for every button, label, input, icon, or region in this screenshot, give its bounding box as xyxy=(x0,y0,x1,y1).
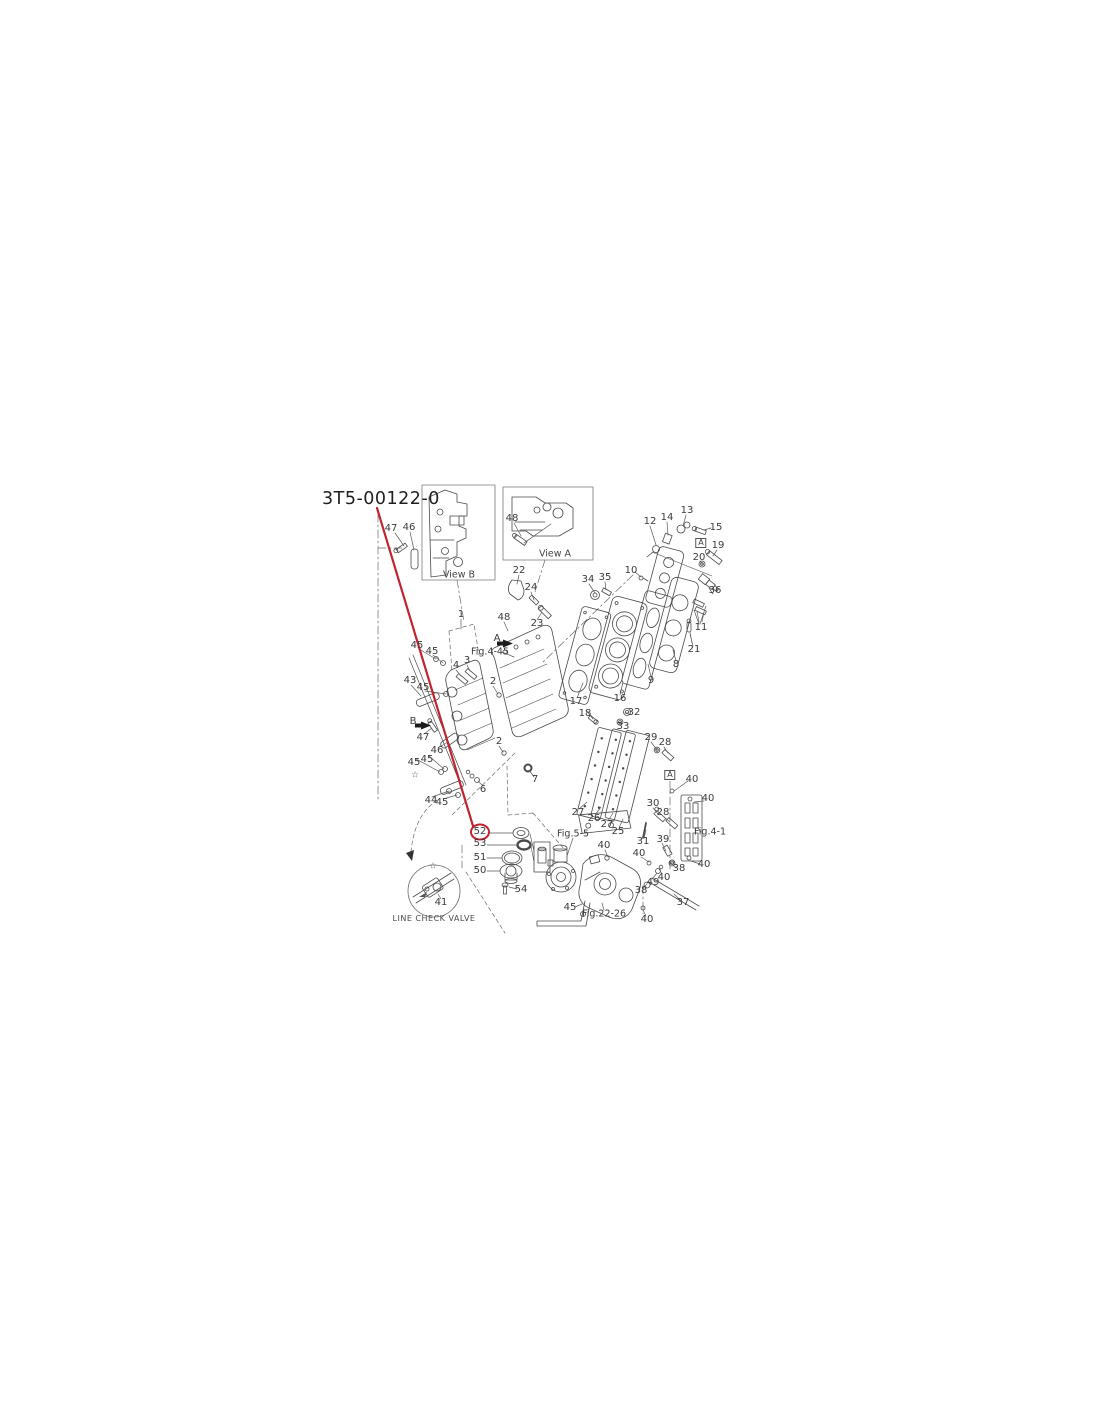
part-label-40: 40 xyxy=(633,849,646,859)
part-label-9: 9 xyxy=(648,676,654,686)
part-label-41: 41 xyxy=(435,898,448,908)
part-label-17: 17 xyxy=(570,697,583,707)
part-label-2: 2 xyxy=(490,677,496,687)
part-label-4: 4 xyxy=(453,661,459,671)
view-a-caption: View A xyxy=(539,549,571,559)
part-label-32: 32 xyxy=(628,708,641,718)
part-label-16: 16 xyxy=(614,694,627,704)
part-label-45: 45 xyxy=(417,683,430,693)
part-label-35: 35 xyxy=(599,573,612,583)
fig-ref-4-45: Fig.4-45 xyxy=(471,647,509,657)
part-label-13: 13 xyxy=(681,506,694,516)
part-label-43: 43 xyxy=(404,676,417,686)
fig-ref-22-26: Fig.22-26 xyxy=(582,909,626,919)
part-label-24: 24 xyxy=(525,583,538,593)
part-label-37: 37 xyxy=(677,898,690,908)
part-label-48: 48 xyxy=(506,514,519,524)
part-label-31: 31 xyxy=(637,837,650,847)
part-label-6: 6 xyxy=(480,785,486,795)
part-label-54: 54 xyxy=(515,885,528,895)
parts-diagram-page: 3T5-00122-0 474648222423343512141315A192… xyxy=(0,0,1100,1422)
fig-ref-4-1: Fig.4-1 xyxy=(694,827,726,837)
part-label-1: 1 xyxy=(458,610,464,620)
part-label-21: 21 xyxy=(688,645,701,655)
arrow-label-a: A xyxy=(494,634,501,644)
part-label-52-highlighted: 52 xyxy=(474,827,487,837)
part-label-53: 53 xyxy=(474,839,487,849)
part-label-23: 23 xyxy=(531,619,544,629)
part-label-40: 40 xyxy=(658,873,671,883)
part-label-36: 36 xyxy=(709,586,722,596)
part-label-3: 3 xyxy=(464,656,470,666)
fig-ref-5-5: Fig.5-5 xyxy=(557,829,589,839)
part-label-51: 51 xyxy=(474,853,487,863)
part-label-20: 20 xyxy=(693,553,706,563)
label-layer: 474648222423343512141315A192010361121891… xyxy=(0,0,1100,1422)
part-label-45: 45 xyxy=(408,758,421,768)
part-label-45: 45 xyxy=(411,641,424,651)
boxed-a-bottom: A xyxy=(664,770,675,780)
part-label-29: 29 xyxy=(645,733,658,743)
part-label-38: 38 xyxy=(673,864,686,874)
part-label-48: 48 xyxy=(498,613,511,623)
part-label-26: 26 xyxy=(588,814,601,824)
part-label-47: 47 xyxy=(385,524,398,534)
part-label-50: 50 xyxy=(474,866,487,876)
part-label-12: 12 xyxy=(644,517,657,527)
part-label-40: 40 xyxy=(686,775,699,785)
part-label-40: 40 xyxy=(698,860,711,870)
part-label-10: 10 xyxy=(625,566,638,576)
part-label-45: 45 xyxy=(421,755,434,765)
part-label-7: 7 xyxy=(532,775,538,785)
part-label-18: 18 xyxy=(579,709,592,719)
part-label-33: 33 xyxy=(617,722,630,732)
part-label-45: 45 xyxy=(436,798,449,808)
part-label-46: 46 xyxy=(403,523,416,533)
part-label-45: 45 xyxy=(564,903,577,913)
part-label-39: 39 xyxy=(657,835,670,845)
part-label-45: 45 xyxy=(426,647,439,657)
part-label-38: 38 xyxy=(635,886,648,896)
part-label-2: 2 xyxy=(496,737,502,747)
part-label-8: 8 xyxy=(673,660,679,670)
part-label-27: 27 xyxy=(572,808,585,818)
part-label-28: 28 xyxy=(657,808,670,818)
part-label-47: 47 xyxy=(417,733,430,743)
line-check-valve-caption: LINE CHECK VALVE xyxy=(393,915,476,923)
part-label-19: 19 xyxy=(712,541,725,551)
part-label-34: 34 xyxy=(582,575,595,585)
part-label-22: 22 xyxy=(513,566,526,576)
part-label-11: 11 xyxy=(695,623,708,633)
boxed-a-top: A xyxy=(695,538,706,548)
part-label-25: 25 xyxy=(612,827,625,837)
part-label-49: 49 xyxy=(647,878,660,888)
star-mark: ☆ xyxy=(411,772,419,781)
view-b-caption: View B xyxy=(443,570,475,580)
part-label-40: 40 xyxy=(702,794,715,804)
star-mark: ☆ xyxy=(429,863,437,872)
part-label-40: 40 xyxy=(598,841,611,851)
arrow-label-b: B xyxy=(410,717,417,727)
part-label-28: 28 xyxy=(659,738,672,748)
part-label-15: 15 xyxy=(710,523,723,533)
part-label-40: 40 xyxy=(641,915,654,925)
part-label-14: 14 xyxy=(661,513,674,523)
